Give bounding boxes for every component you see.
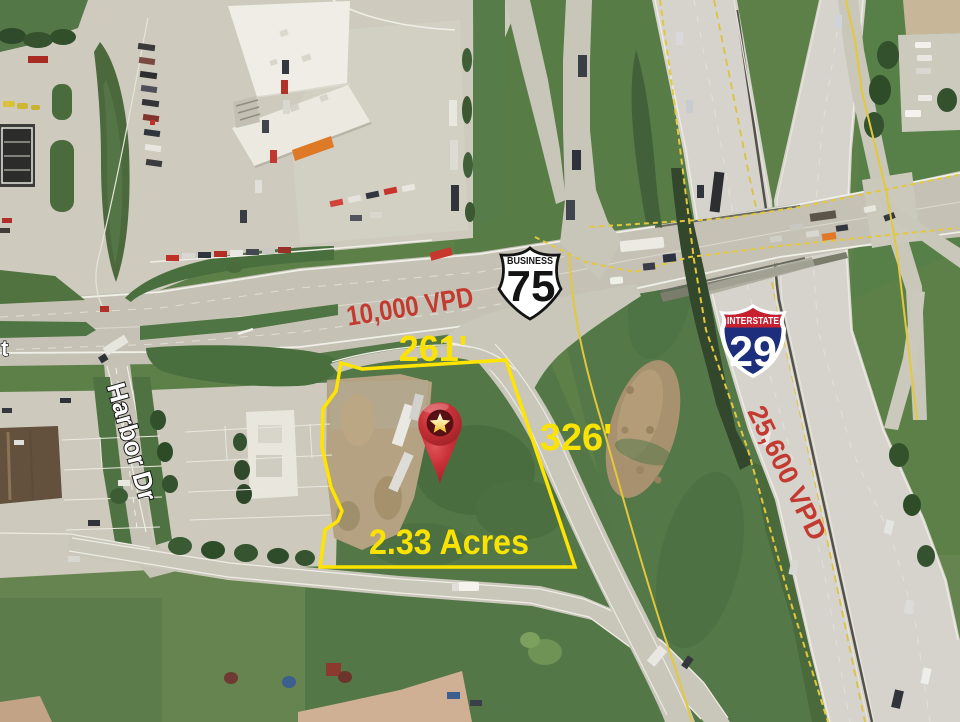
svg-text:t: t [1,336,9,361]
svg-text:29: 29 [729,328,777,376]
svg-text:75: 75 [507,262,556,311]
svg-text:INTERSTATE: INTERSTATE [727,316,779,327]
svg-text:261': 261' [399,328,468,369]
svg-text:326': 326' [540,417,612,459]
svg-text:2.33 Acres: 2.33 Acres [369,523,529,562]
